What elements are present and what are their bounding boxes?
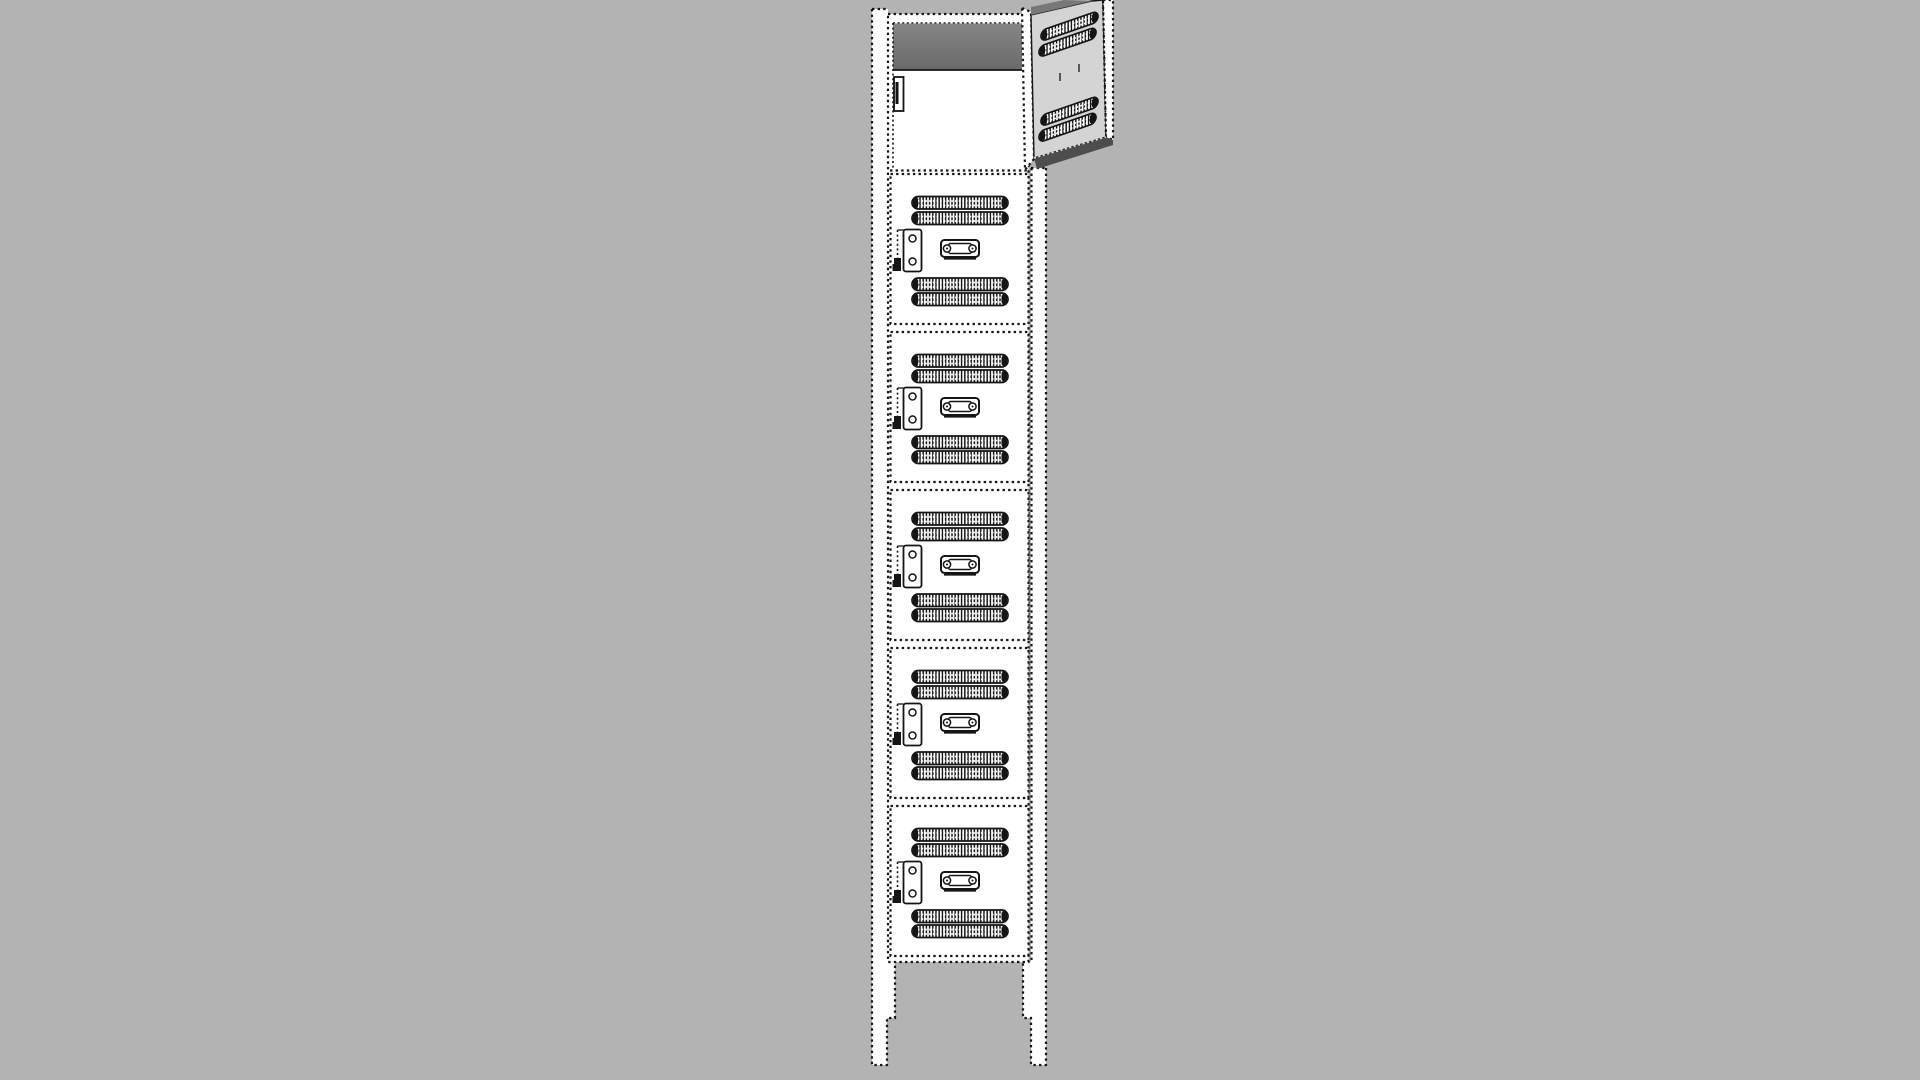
vent-slat [912, 293, 1008, 306]
door-handle[interactable] [941, 398, 979, 417]
vent-slat [912, 370, 1008, 383]
latch-screw [909, 709, 916, 716]
model-canvas[interactable] [0, 0, 1920, 1080]
vent-slat [912, 671, 1008, 684]
locker-door-tier-5[interactable] [891, 648, 1029, 798]
vent-slat [912, 513, 1008, 526]
vent-slat [912, 212, 1008, 225]
latch-screw [909, 235, 916, 242]
viewport[interactable] [0, 0, 1920, 1080]
vent-slat [912, 752, 1008, 765]
latch-screw [909, 732, 916, 739]
vent-slat [912, 767, 1008, 780]
vent-slat [912, 436, 1008, 449]
vent-slat [912, 197, 1008, 210]
latch-screw [909, 574, 916, 581]
latch-keeper-bracket [894, 77, 904, 111]
vent-slat [912, 609, 1008, 622]
vent-slat [912, 844, 1008, 857]
closed-doors [891, 174, 1029, 956]
latch-screw [909, 393, 916, 400]
vent-slat [912, 910, 1008, 923]
locker-door-tier-3[interactable] [891, 332, 1029, 482]
door-handle[interactable] [941, 556, 979, 575]
door-handle[interactable] [941, 714, 979, 733]
open-door[interactable] [1022, 0, 1113, 170]
vent-slat [912, 451, 1008, 464]
latch-screw [909, 258, 916, 265]
vent-slat [912, 925, 1008, 938]
locker-door-tier-4[interactable] [891, 490, 1029, 640]
vent-slat [912, 594, 1008, 607]
vent-slat [912, 528, 1008, 541]
latch-screw [909, 867, 916, 874]
vent-slat [912, 278, 1008, 291]
latch-screw [909, 890, 916, 897]
interior-shadow [893, 24, 1022, 71]
vent-slat [912, 686, 1008, 699]
vent-slat [912, 355, 1008, 368]
locker-door-tier-2[interactable] [891, 174, 1029, 324]
latch-screw [909, 416, 916, 423]
open-compartment[interactable] [890, 22, 1029, 171]
locker-door-tier-6[interactable] [891, 806, 1029, 956]
door-handle[interactable] [941, 240, 979, 259]
vent-slat [912, 829, 1008, 842]
door-handle[interactable] [941, 872, 979, 891]
latch-screw [909, 551, 916, 558]
